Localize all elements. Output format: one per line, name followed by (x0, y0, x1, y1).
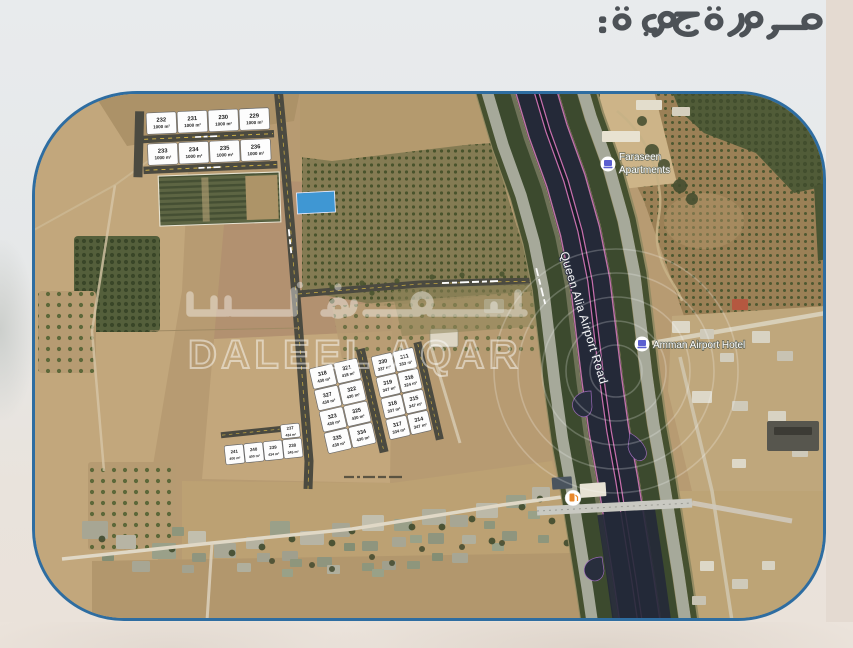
svg-text:229: 229 (249, 113, 260, 119)
svg-text:1000 m²: 1000 m² (247, 151, 264, 157)
svg-text:230: 230 (218, 115, 228, 121)
svg-text:239: 239 (269, 444, 277, 450)
svg-text:232: 232 (156, 117, 166, 123)
svg-text:231: 231 (187, 116, 198, 122)
svg-text:233: 233 (158, 148, 169, 154)
svg-text:1000 m²: 1000 m² (184, 122, 201, 128)
svg-text:240: 240 (250, 447, 258, 453)
svg-text:Faraseen: Faraseen (619, 152, 661, 163)
svg-text:235: 235 (220, 146, 231, 152)
svg-text:237: 237 (286, 425, 294, 431)
svg-text:1000 m²: 1000 m² (216, 152, 233, 158)
svg-text:1000 m²: 1000 m² (154, 155, 171, 161)
svg-text:DALEEL AQAR: DALEEL AQAR (188, 333, 522, 377)
svg-text:238: 238 (289, 442, 297, 448)
svg-text:241: 241 (230, 449, 238, 455)
svg-text:1000 m²: 1000 m² (185, 153, 202, 159)
svg-text:234: 234 (189, 147, 200, 153)
svg-text:236: 236 (251, 144, 262, 150)
svg-text:1000 m²: 1000 m² (246, 120, 263, 126)
svg-text:1000 m²: 1000 m² (215, 121, 232, 127)
svg-text:Apartments: Apartments (619, 165, 670, 176)
svg-text:1000 m²: 1000 m² (153, 124, 170, 130)
svg-text:Amman Airport Hotel: Amman Airport Hotel (653, 340, 745, 351)
